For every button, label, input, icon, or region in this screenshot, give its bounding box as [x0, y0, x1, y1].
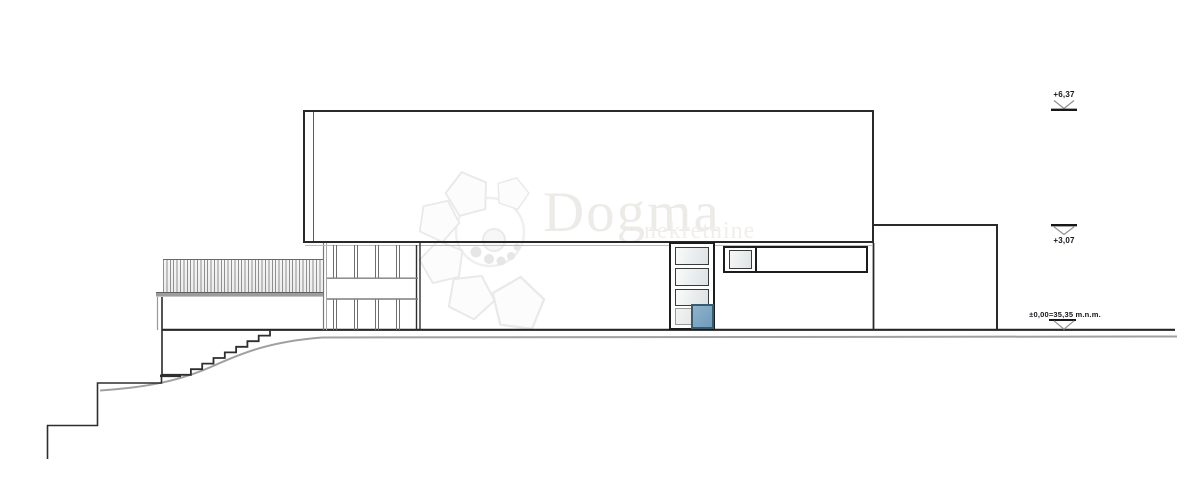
building-upper-volume — [303, 110, 874, 243]
balcony-railing — [163, 259, 323, 293]
window-grid-mullions — [327, 243, 420, 330]
strip-window-divider — [755, 248, 757, 271]
retaining-wall-profile — [48, 375, 162, 459]
level-marker-roof-icon — [1051, 101, 1077, 110]
upper-volume-inner-line — [313, 112, 314, 241]
level-label-upper: +3,07 — [1038, 236, 1090, 246]
ground-floor-left-corner — [324, 243, 327, 330]
level-label-roof: +6,37 — [1038, 90, 1090, 100]
door-blue-glass-panel — [691, 304, 714, 329]
terrain-line — [100, 337, 1177, 391]
level-marker-upper-icon — [1051, 225, 1077, 234]
level-marker-ground-icon — [1049, 320, 1076, 329]
elevation-drawing: Dogma nekretnine — [0, 0, 1200, 477]
building-right-volume — [874, 224, 998, 330]
stairs-profile — [162, 330, 271, 375]
strip-window — [723, 246, 868, 273]
door-glass-panel-2 — [675, 268, 709, 286]
door-glass-panel-1 — [675, 247, 709, 265]
terrace-wall-lines — [158, 296, 163, 376]
strip-window-glass-cell — [729, 250, 752, 269]
railing-bottom-rail — [156, 292, 323, 297]
level-label-ground: ±0,00=35,35 m.n.m. — [1019, 310, 1111, 320]
